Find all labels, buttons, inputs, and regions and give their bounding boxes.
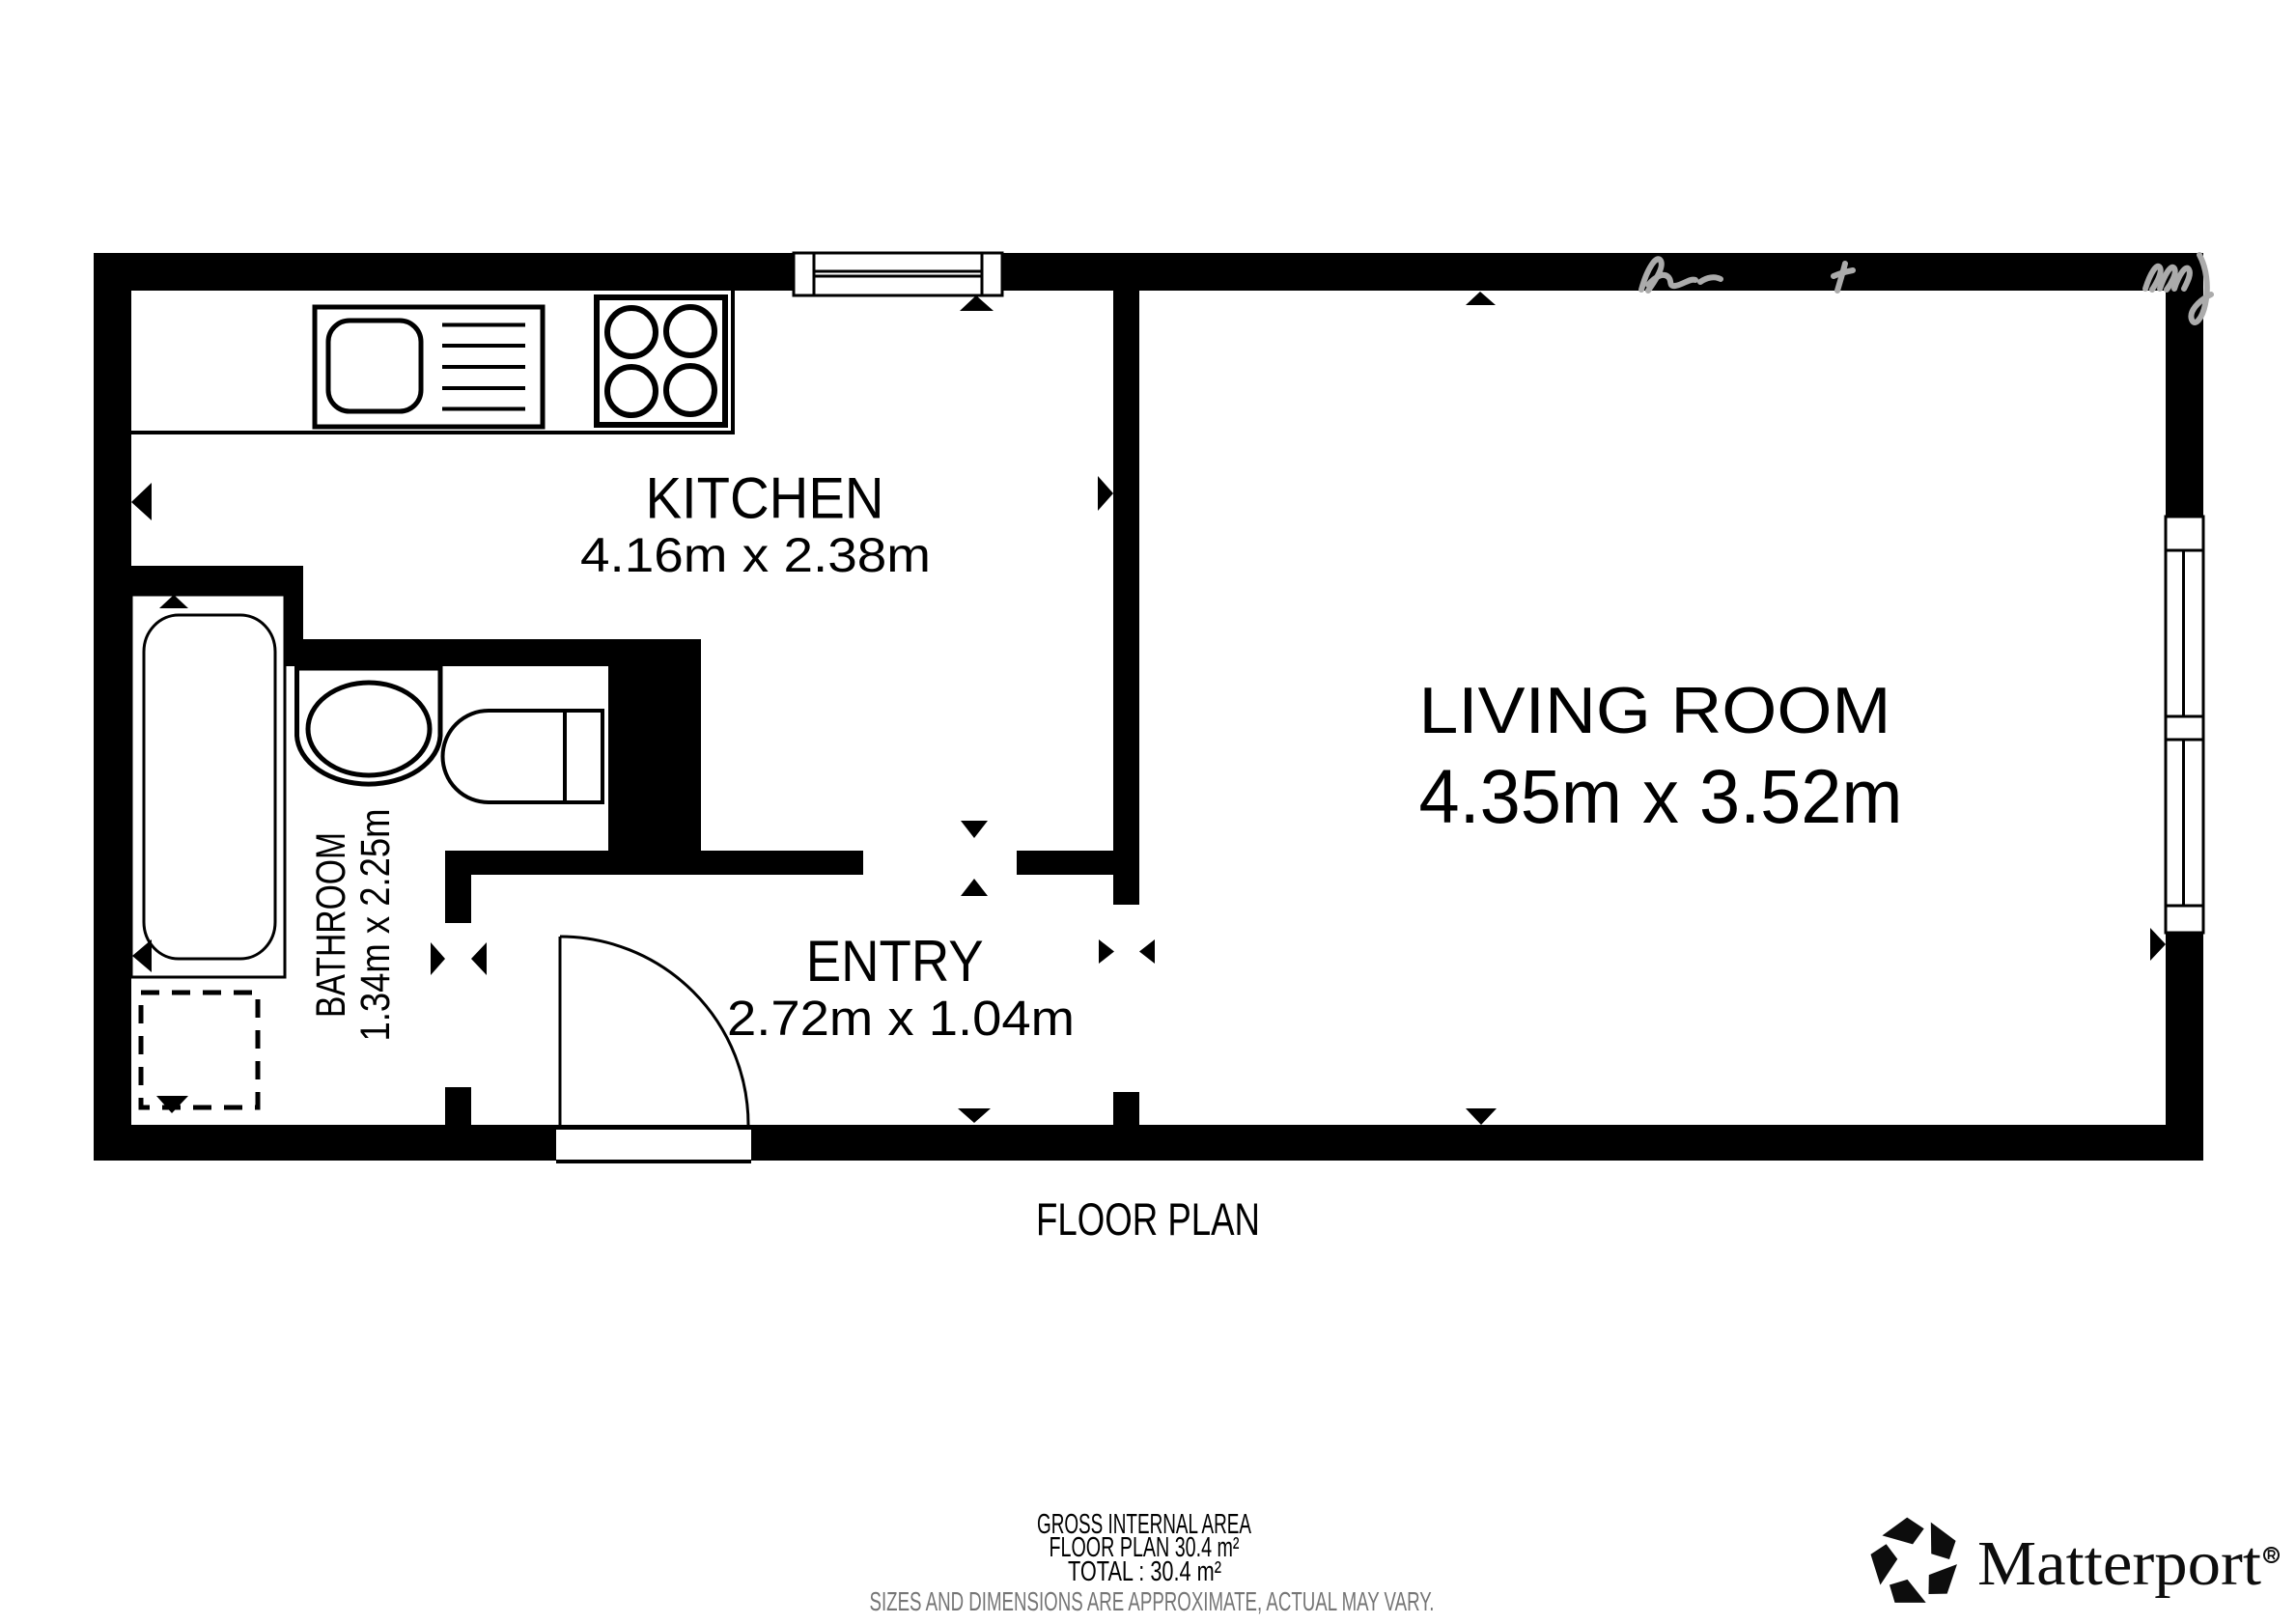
svg-text:KITCHEN: KITCHEN <box>646 466 884 531</box>
svg-text:2.72m x 1.04m: 2.72m x 1.04m <box>727 991 1075 1046</box>
svg-text:SIZES AND DIMENSIONS ARE APPRO: SIZES AND DIMENSIONS ARE APPROXIMATE, AC… <box>870 1586 1435 1616</box>
svg-text:1.34m x 2.25m: 1.34m x 2.25m <box>353 809 399 1042</box>
svg-text:4.35m x 3.52m: 4.35m x 3.52m <box>1419 753 1903 839</box>
svg-text:BATHROOM: BATHROOM <box>309 832 354 1018</box>
svg-text:ENTRY: ENTRY <box>806 929 984 994</box>
svg-text:LIVING ROOM: LIVING ROOM <box>1419 674 1891 747</box>
svg-text:FLOOR PLAN: FLOOR PLAN <box>1036 1193 1260 1245</box>
svg-text:4.16m x 2.38m: 4.16m x 2.38m <box>580 527 931 582</box>
svg-text:TOTAL : 30.4 m²: TOTAL : 30.4 m² <box>1068 1556 1221 1587</box>
svg-text:Matterport: Matterport <box>1977 1528 2261 1599</box>
